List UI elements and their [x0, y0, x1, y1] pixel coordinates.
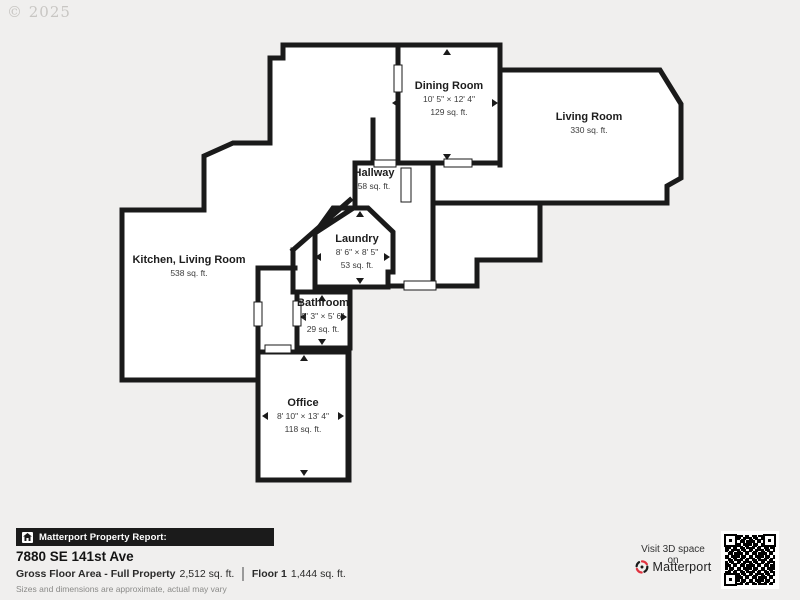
- gross-floor-area-label: Gross Floor Area - Full Property: [16, 568, 175, 580]
- floor-area-metrics: Gross Floor Area - Full Property 2,512 s…: [16, 567, 346, 581]
- brand-name: Matterport: [653, 560, 712, 574]
- room-area: 538 sq. ft.: [132, 267, 245, 280]
- hallway-corridor-door: [401, 168, 411, 202]
- house-icon: [22, 532, 33, 543]
- room-label-kitchen: Kitchen, Living Room 538 sq. ft.: [132, 253, 245, 280]
- qr-finder-icon: [724, 573, 737, 586]
- dining-bottom-door: [444, 159, 472, 167]
- floor1-label: Floor 1: [252, 568, 287, 580]
- property-address: 7880 SE 141st Ave: [16, 549, 134, 564]
- room-dimensions: 8' 10" × 13' 4": [277, 410, 329, 423]
- report-title: Matterport Property Report:: [39, 532, 167, 543]
- floor-plan: [0, 0, 800, 520]
- disclaimer-text: Sizes and dimensions are approximate, ac…: [16, 584, 227, 594]
- room-area: 29 sq. ft.: [297, 323, 349, 336]
- qr-finder-icon: [763, 534, 776, 547]
- kitchen-corridor-door: [254, 302, 262, 326]
- room-area: 53 sq. ft.: [335, 259, 378, 272]
- room-dimensions: 8' 6" × 8' 5": [335, 246, 378, 259]
- report-title-bar: Matterport Property Report:: [16, 528, 274, 546]
- floor1-value: 1,444 sq. ft.: [291, 568, 346, 580]
- qr-finder-icon: [724, 534, 737, 547]
- room-name: Bathroom: [297, 296, 349, 310]
- exterior-door: [404, 281, 436, 290]
- room-name: Living Room: [556, 110, 623, 124]
- room-name: Hallway: [354, 166, 395, 180]
- separator: [242, 567, 244, 581]
- matterport-brand: Matterport: [630, 560, 716, 574]
- room-dimensions: 10' 5" × 12' 4": [415, 93, 483, 106]
- room-label-office: Office 8' 10" × 13' 4" 118 sq. ft.: [277, 396, 329, 435]
- room-name: Kitchen, Living Room: [132, 253, 245, 267]
- room-name: Laundry: [335, 232, 378, 246]
- office-door: [265, 345, 291, 353]
- room-label-dining: Dining Room 10' 5" × 12' 4" 129 sq. ft.: [415, 79, 483, 118]
- room-area: 58 sq. ft.: [354, 180, 395, 193]
- room-name: Office: [277, 396, 329, 410]
- matterport-logo-icon: [635, 560, 649, 574]
- room-name: Dining Room: [415, 79, 483, 93]
- dining-left-door: [394, 65, 402, 92]
- room-dimensions: 5' 3" × 5' 6": [297, 310, 349, 323]
- room-label-hallway: Hallway 58 sq. ft.: [354, 166, 395, 193]
- room-label-bathroom: Bathroom 5' 3" × 5' 6" 29 sq. ft.: [297, 296, 349, 335]
- qr-code: [721, 531, 779, 589]
- property-report-page: © 2025: [0, 0, 800, 600]
- room-label-living: Living Room 330 sq. ft.: [556, 110, 623, 137]
- room-area: 129 sq. ft.: [415, 106, 483, 119]
- room-label-laundry: Laundry 8' 6" × 8' 5" 53 sq. ft.: [335, 232, 378, 271]
- gross-floor-area-value: 2,512 sq. ft.: [179, 568, 234, 580]
- room-area: 118 sq. ft.: [277, 423, 329, 436]
- room-area: 330 sq. ft.: [556, 124, 623, 137]
